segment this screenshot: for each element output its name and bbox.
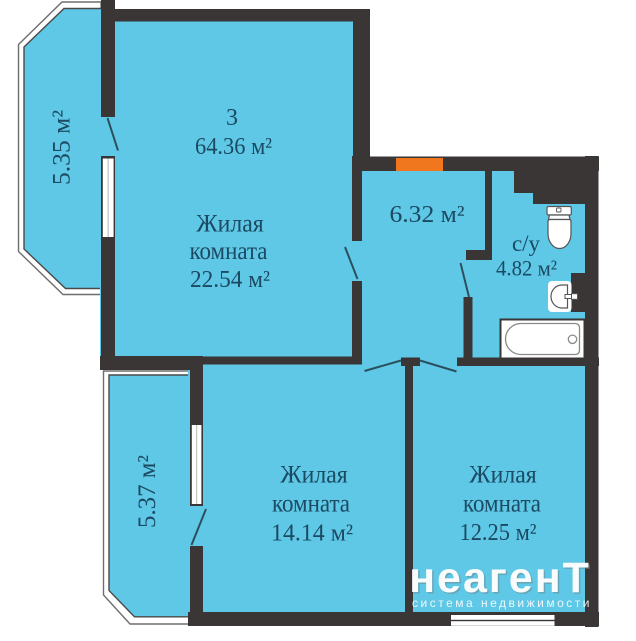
svg-text:комната: комната [190, 238, 268, 265]
svg-text:комната: комната [272, 491, 350, 518]
svg-text:система недвижимости: система недвижимости [412, 596, 592, 610]
svg-text:14.14 м²: 14.14 м² [271, 520, 353, 547]
svg-text:64.36 м²: 64.36 м² [195, 133, 272, 160]
svg-text:6.32 м²: 6.32 м² [390, 202, 465, 228]
svg-text:3: 3 [226, 105, 238, 131]
svg-text:5.37 м²: 5.37 м² [134, 455, 161, 528]
svg-text:12.25 м²: 12.25 м² [460, 519, 537, 546]
svg-text:с/у: с/у [512, 231, 541, 256]
svg-text:22.54 м²: 22.54 м² [190, 266, 270, 293]
svg-text:5.35 м²: 5.35 м² [49, 110, 76, 185]
svg-text:4.82 м²: 4.82 м² [496, 256, 557, 281]
svg-text:неагенТ: неагенТ [409, 554, 591, 602]
svg-text:Жилая: Жилая [196, 211, 264, 238]
svg-text:Жилая: Жилая [280, 462, 348, 489]
svg-text:комната: комната [463, 491, 541, 518]
svg-text:Жилая: Жилая [469, 462, 537, 489]
